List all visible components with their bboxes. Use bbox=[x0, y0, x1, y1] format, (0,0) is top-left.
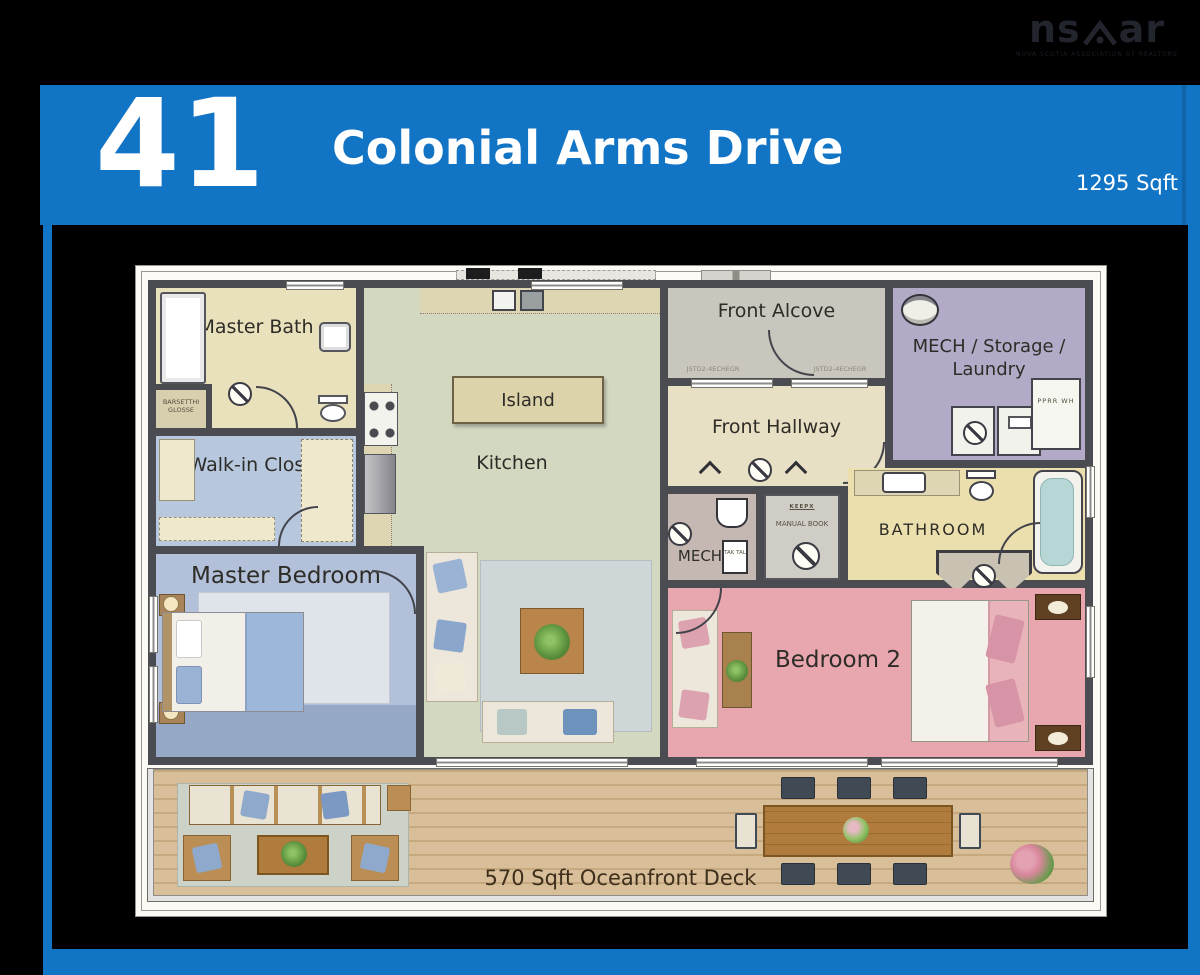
patio-door bbox=[696, 758, 868, 767]
window bbox=[149, 596, 158, 653]
smoke-detector-icon bbox=[668, 522, 692, 546]
water-heater-unit: PPRR WH bbox=[1031, 378, 1081, 450]
window bbox=[1086, 466, 1095, 518]
pillow bbox=[497, 709, 527, 735]
washer bbox=[951, 406, 995, 456]
patio-door bbox=[881, 758, 1058, 767]
room-master-bath: Master Bath BARSETTHI GLOSSE bbox=[156, 288, 356, 428]
bathtub bbox=[1033, 470, 1083, 574]
lamp bbox=[163, 596, 179, 612]
closet-shelf bbox=[159, 439, 195, 501]
nightstand bbox=[1035, 725, 1081, 751]
potted-plant bbox=[534, 624, 570, 660]
room-walk-in-closet: Walk-in Closet bbox=[156, 436, 356, 546]
utility-sink bbox=[716, 498, 748, 528]
outdoor-side-table bbox=[387, 785, 411, 811]
dining-chair bbox=[735, 813, 757, 849]
room-label-bathroom: BATHROOM bbox=[848, 520, 1018, 540]
pillow bbox=[563, 709, 597, 735]
interior-window bbox=[691, 379, 773, 388]
linen-closet: BARSETTHI GLOSSE bbox=[156, 384, 212, 428]
toilet bbox=[969, 481, 994, 501]
smoke-detector-icon bbox=[792, 542, 820, 570]
headboard bbox=[163, 613, 172, 711]
table-centerpiece bbox=[843, 817, 869, 843]
window bbox=[149, 666, 158, 723]
pillow bbox=[678, 689, 710, 721]
pillow bbox=[433, 619, 467, 653]
total-area: 1295 Sqft bbox=[1076, 171, 1178, 195]
tak-tag: TAK TAL bbox=[724, 550, 746, 557]
header-band: 41 Colonial Arms Drive 1295 Sqft bbox=[40, 85, 1200, 225]
deck-label: 570 Sqft Oceanfront Deck bbox=[153, 866, 1088, 890]
room-bathroom: BATHROOM bbox=[848, 468, 1085, 580]
room-utility-closet: KEEPX MANUAL BOOK bbox=[764, 494, 840, 580]
room-label-front-alcove: Front Alcove bbox=[668, 300, 885, 324]
dining-chair bbox=[959, 813, 981, 849]
washer-drum-icon bbox=[963, 421, 987, 445]
lamp bbox=[1048, 601, 1068, 614]
tub-basin bbox=[1040, 478, 1074, 566]
dining-chair bbox=[781, 777, 815, 799]
pillow bbox=[176, 620, 202, 658]
pillow bbox=[240, 790, 270, 820]
potted-plant bbox=[726, 660, 748, 682]
kitchen-island: Island bbox=[452, 376, 604, 424]
smoke-detector-icon bbox=[972, 564, 996, 588]
sofa bbox=[482, 701, 614, 743]
room-living-area bbox=[424, 546, 660, 757]
toilet bbox=[320, 404, 346, 422]
interior-plan: Master Bath BARSETTHI GLOSSE Walk-in Clo… bbox=[148, 280, 1093, 765]
closet-shelf bbox=[159, 517, 275, 541]
stove bbox=[364, 392, 398, 446]
pillow bbox=[434, 662, 467, 695]
roof-vent bbox=[518, 268, 542, 279]
potted-plant bbox=[281, 841, 307, 867]
dining-chair bbox=[893, 777, 927, 799]
window bbox=[1086, 606, 1095, 678]
door-arc bbox=[256, 386, 298, 428]
logo-text-ns: ns bbox=[1029, 10, 1081, 48]
utility-box: TAK TAL bbox=[722, 540, 748, 574]
keep-tag: KEEPX bbox=[766, 504, 838, 511]
roof-vent bbox=[466, 268, 490, 279]
pillow bbox=[320, 790, 349, 819]
outdoor-sofa bbox=[189, 785, 381, 825]
bed bbox=[162, 612, 304, 712]
logo-subtext: NOVA SCOTIA ASSOCIATION OF REALTORS bbox=[1012, 51, 1182, 58]
wh-tag: PPRR WH bbox=[1033, 398, 1079, 406]
room-mech: MECH TAK TAL bbox=[668, 494, 756, 580]
closet-tag: BARSETTHI GLOSSE bbox=[156, 399, 206, 415]
nightstand bbox=[1035, 594, 1081, 620]
room-label-mech-storage-laundry: MECH / Storage / Laundry bbox=[893, 336, 1085, 381]
house-number: 41 bbox=[95, 71, 265, 217]
floor-shade bbox=[156, 705, 416, 757]
room-front-alcove: Front Alcove JSTD2-4ECHEGR JSTD2-4ECHEGR bbox=[668, 288, 885, 378]
nsar-logo: ns ar NOVA SCOTIA ASSOCIATION OF REALTOR… bbox=[1012, 10, 1182, 58]
dimension-tag: JSTD2-4ECHEGR bbox=[674, 366, 752, 374]
patio-door bbox=[436, 758, 628, 767]
blanket bbox=[245, 613, 303, 711]
bathroom-sink bbox=[882, 472, 926, 493]
room-label-front-hallway: Front Hallway bbox=[668, 416, 885, 440]
interior-window bbox=[791, 379, 868, 388]
bifold-door-icon bbox=[699, 461, 722, 484]
logo-text-ar: ar bbox=[1119, 10, 1165, 48]
header-edge-accent bbox=[1182, 85, 1186, 225]
oceanfront-deck: 570 Sqft Oceanfront Deck bbox=[148, 769, 1093, 901]
island-label: Island bbox=[454, 390, 602, 413]
water-heater bbox=[901, 294, 939, 326]
front-door-arc bbox=[768, 330, 814, 376]
kitchen-sink bbox=[520, 290, 544, 311]
window bbox=[531, 281, 623, 290]
bifold-door-icon bbox=[785, 461, 808, 484]
toilet-tank bbox=[318, 395, 348, 404]
room-master-bedroom: Master Bedroom bbox=[156, 554, 416, 757]
bed bbox=[911, 600, 1029, 742]
room-label-mech: MECH bbox=[670, 547, 730, 566]
toilet-tank bbox=[966, 470, 996, 479]
pillow bbox=[176, 666, 202, 704]
kitchen-sink bbox=[492, 290, 516, 311]
window bbox=[286, 281, 344, 290]
flyer: ns ar NOVA SCOTIA ASSOCIATION OF REALTOR… bbox=[0, 0, 1200, 975]
house-roof-icon bbox=[1083, 18, 1117, 48]
smoke-detector-icon bbox=[748, 458, 772, 482]
door-arc bbox=[278, 506, 318, 546]
pillow bbox=[432, 558, 468, 594]
dryer-panel bbox=[1008, 416, 1032, 429]
sectional-sofa bbox=[426, 552, 478, 702]
nsar-logo-wordmark: ns ar bbox=[1012, 10, 1182, 48]
dining-chair bbox=[837, 777, 871, 799]
room-bedroom-2: Bedroom 2 bbox=[668, 588, 1085, 757]
room-mech-storage-laundry: MECH / Storage / Laundry PPRR WH bbox=[893, 288, 1085, 460]
smoke-detector-icon bbox=[228, 382, 252, 406]
lamp bbox=[1048, 732, 1068, 745]
manual-tag: MANUAL BOOK bbox=[766, 520, 838, 528]
room-label-kitchen: Kitchen bbox=[364, 452, 660, 476]
street-name: Colonial Arms Drive bbox=[332, 121, 844, 175]
room-kitchen: Island Kitchen bbox=[364, 288, 660, 546]
shower bbox=[160, 292, 206, 384]
floor-plan-page: Master Bath BARSETTHI GLOSSE Walk-in Clo… bbox=[135, 265, 1107, 917]
bathroom-sink bbox=[319, 322, 351, 352]
